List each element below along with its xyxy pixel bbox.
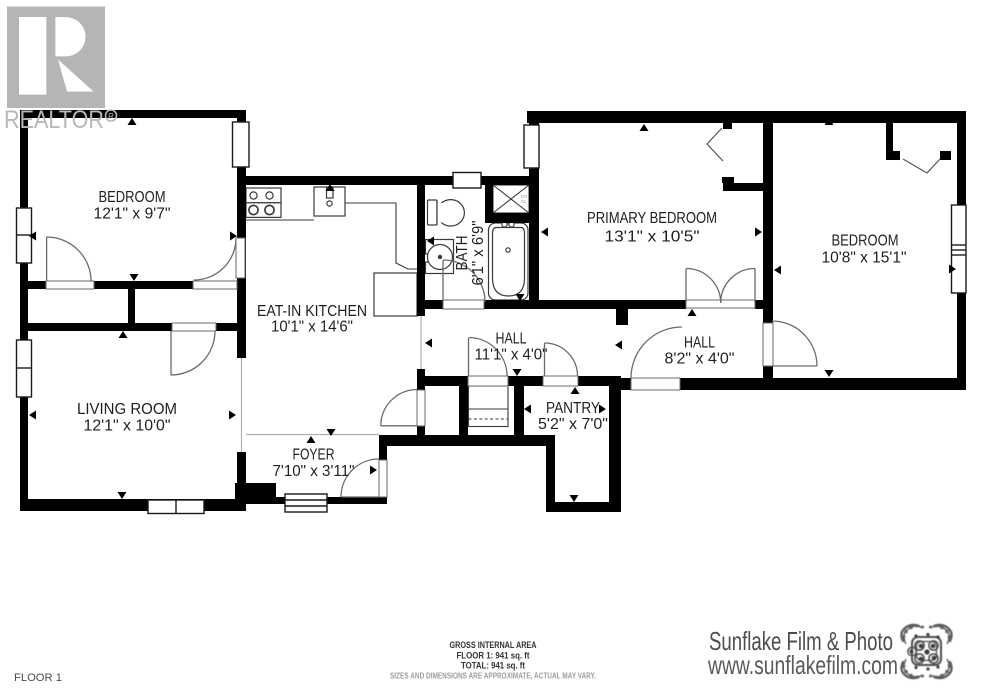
svg-text:PRIMARY BEDROOM: PRIMARY BEDROOM [587,210,717,227]
svg-text:5'2" x 7'0": 5'2" x 7'0" [538,416,608,433]
svg-text:13'1" x 10'5": 13'1" x 10'5" [605,229,700,246]
svg-text:7'10" x 3'11": 7'10" x 3'11" [273,463,355,480]
svg-text:FOYER: FOYER [293,447,335,464]
svg-text:10'1" x 14'6": 10'1" x 14'6" [271,319,353,336]
svg-text:12'1" x 10'0": 12'1" x 10'0" [84,418,171,435]
svg-text:HALL: HALL [684,335,715,352]
svg-text:8'2" x 4'0": 8'2" x 4'0" [665,351,735,368]
svg-text:LIVING ROOM: LIVING ROOM [77,401,177,418]
svg-text:SIZES AND DIMENSIONS ARE APPRO: SIZES AND DIMENSIONS ARE APPROXIMATE, AC… [390,671,596,681]
svg-text:BEDROOM: BEDROOM [99,189,166,206]
svg-text:10'8" x 15'1": 10'8" x 15'1" [822,250,907,267]
svg-text:6'1" x 6'9": 6'1" x 6'9" [470,221,487,286]
svg-text:BATH: BATH [454,236,471,271]
svg-text:PANTRY: PANTRY [546,400,600,417]
svg-text:CL: CL [521,199,527,204]
svg-text:HALL: HALL [496,331,527,348]
svg-text:EAT-IN KITCHEN: EAT-IN KITCHEN [257,303,367,320]
svg-text:R: R [108,112,114,121]
svg-text:11'1" x 4'0": 11'1" x 4'0" [475,347,548,364]
svg-text:12'1" x 9'7": 12'1" x 9'7" [94,206,171,223]
svg-text:GROSS INTERNAL AREA: GROSS INTERNAL AREA [450,640,537,651]
svg-text:FLOOR 1: FLOOR 1 [14,672,62,684]
svg-text:BEDROOM: BEDROOM [832,233,899,250]
svg-text:www.sunflakefilm.com: www.sunflakefilm.com [707,650,898,680]
svg-text:REALTOR: REALTOR [4,106,104,134]
